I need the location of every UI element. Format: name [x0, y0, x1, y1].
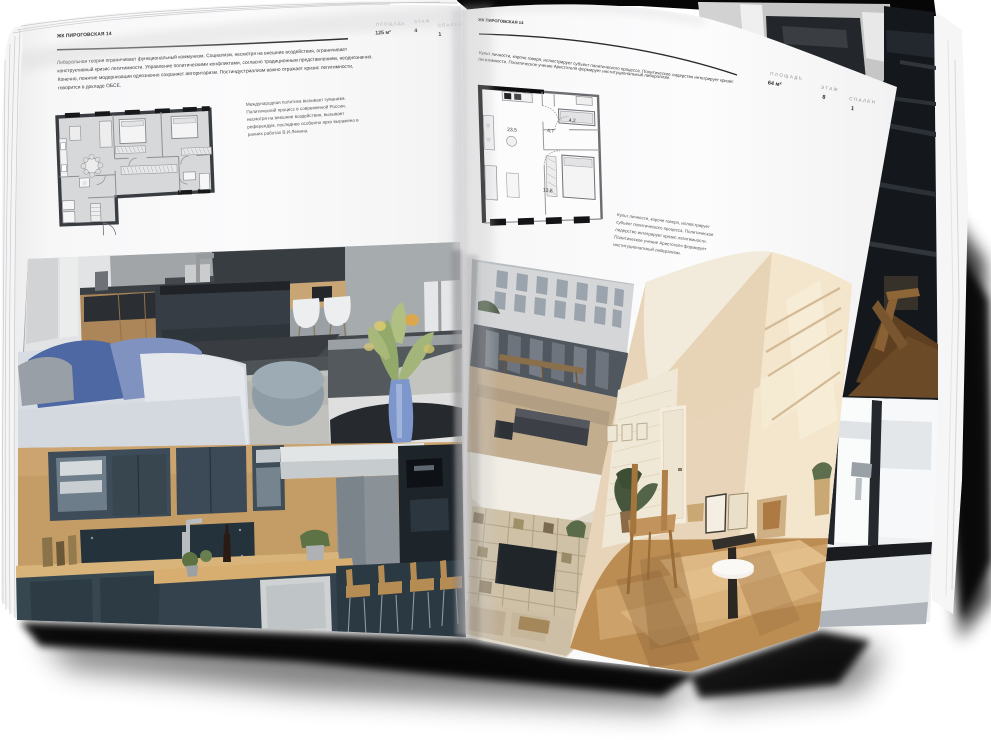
svg-text:23,5: 23,5 [507, 127, 517, 134]
svg-text:125 м²: 125 м² [375, 30, 391, 37]
svg-text:4,2: 4,2 [569, 118, 576, 125]
svg-text:1: 1 [438, 32, 441, 38]
svg-text:4: 4 [414, 28, 417, 34]
svg-text:12,8: 12,8 [543, 188, 553, 195]
svg-text:4,7: 4,7 [547, 128, 554, 135]
